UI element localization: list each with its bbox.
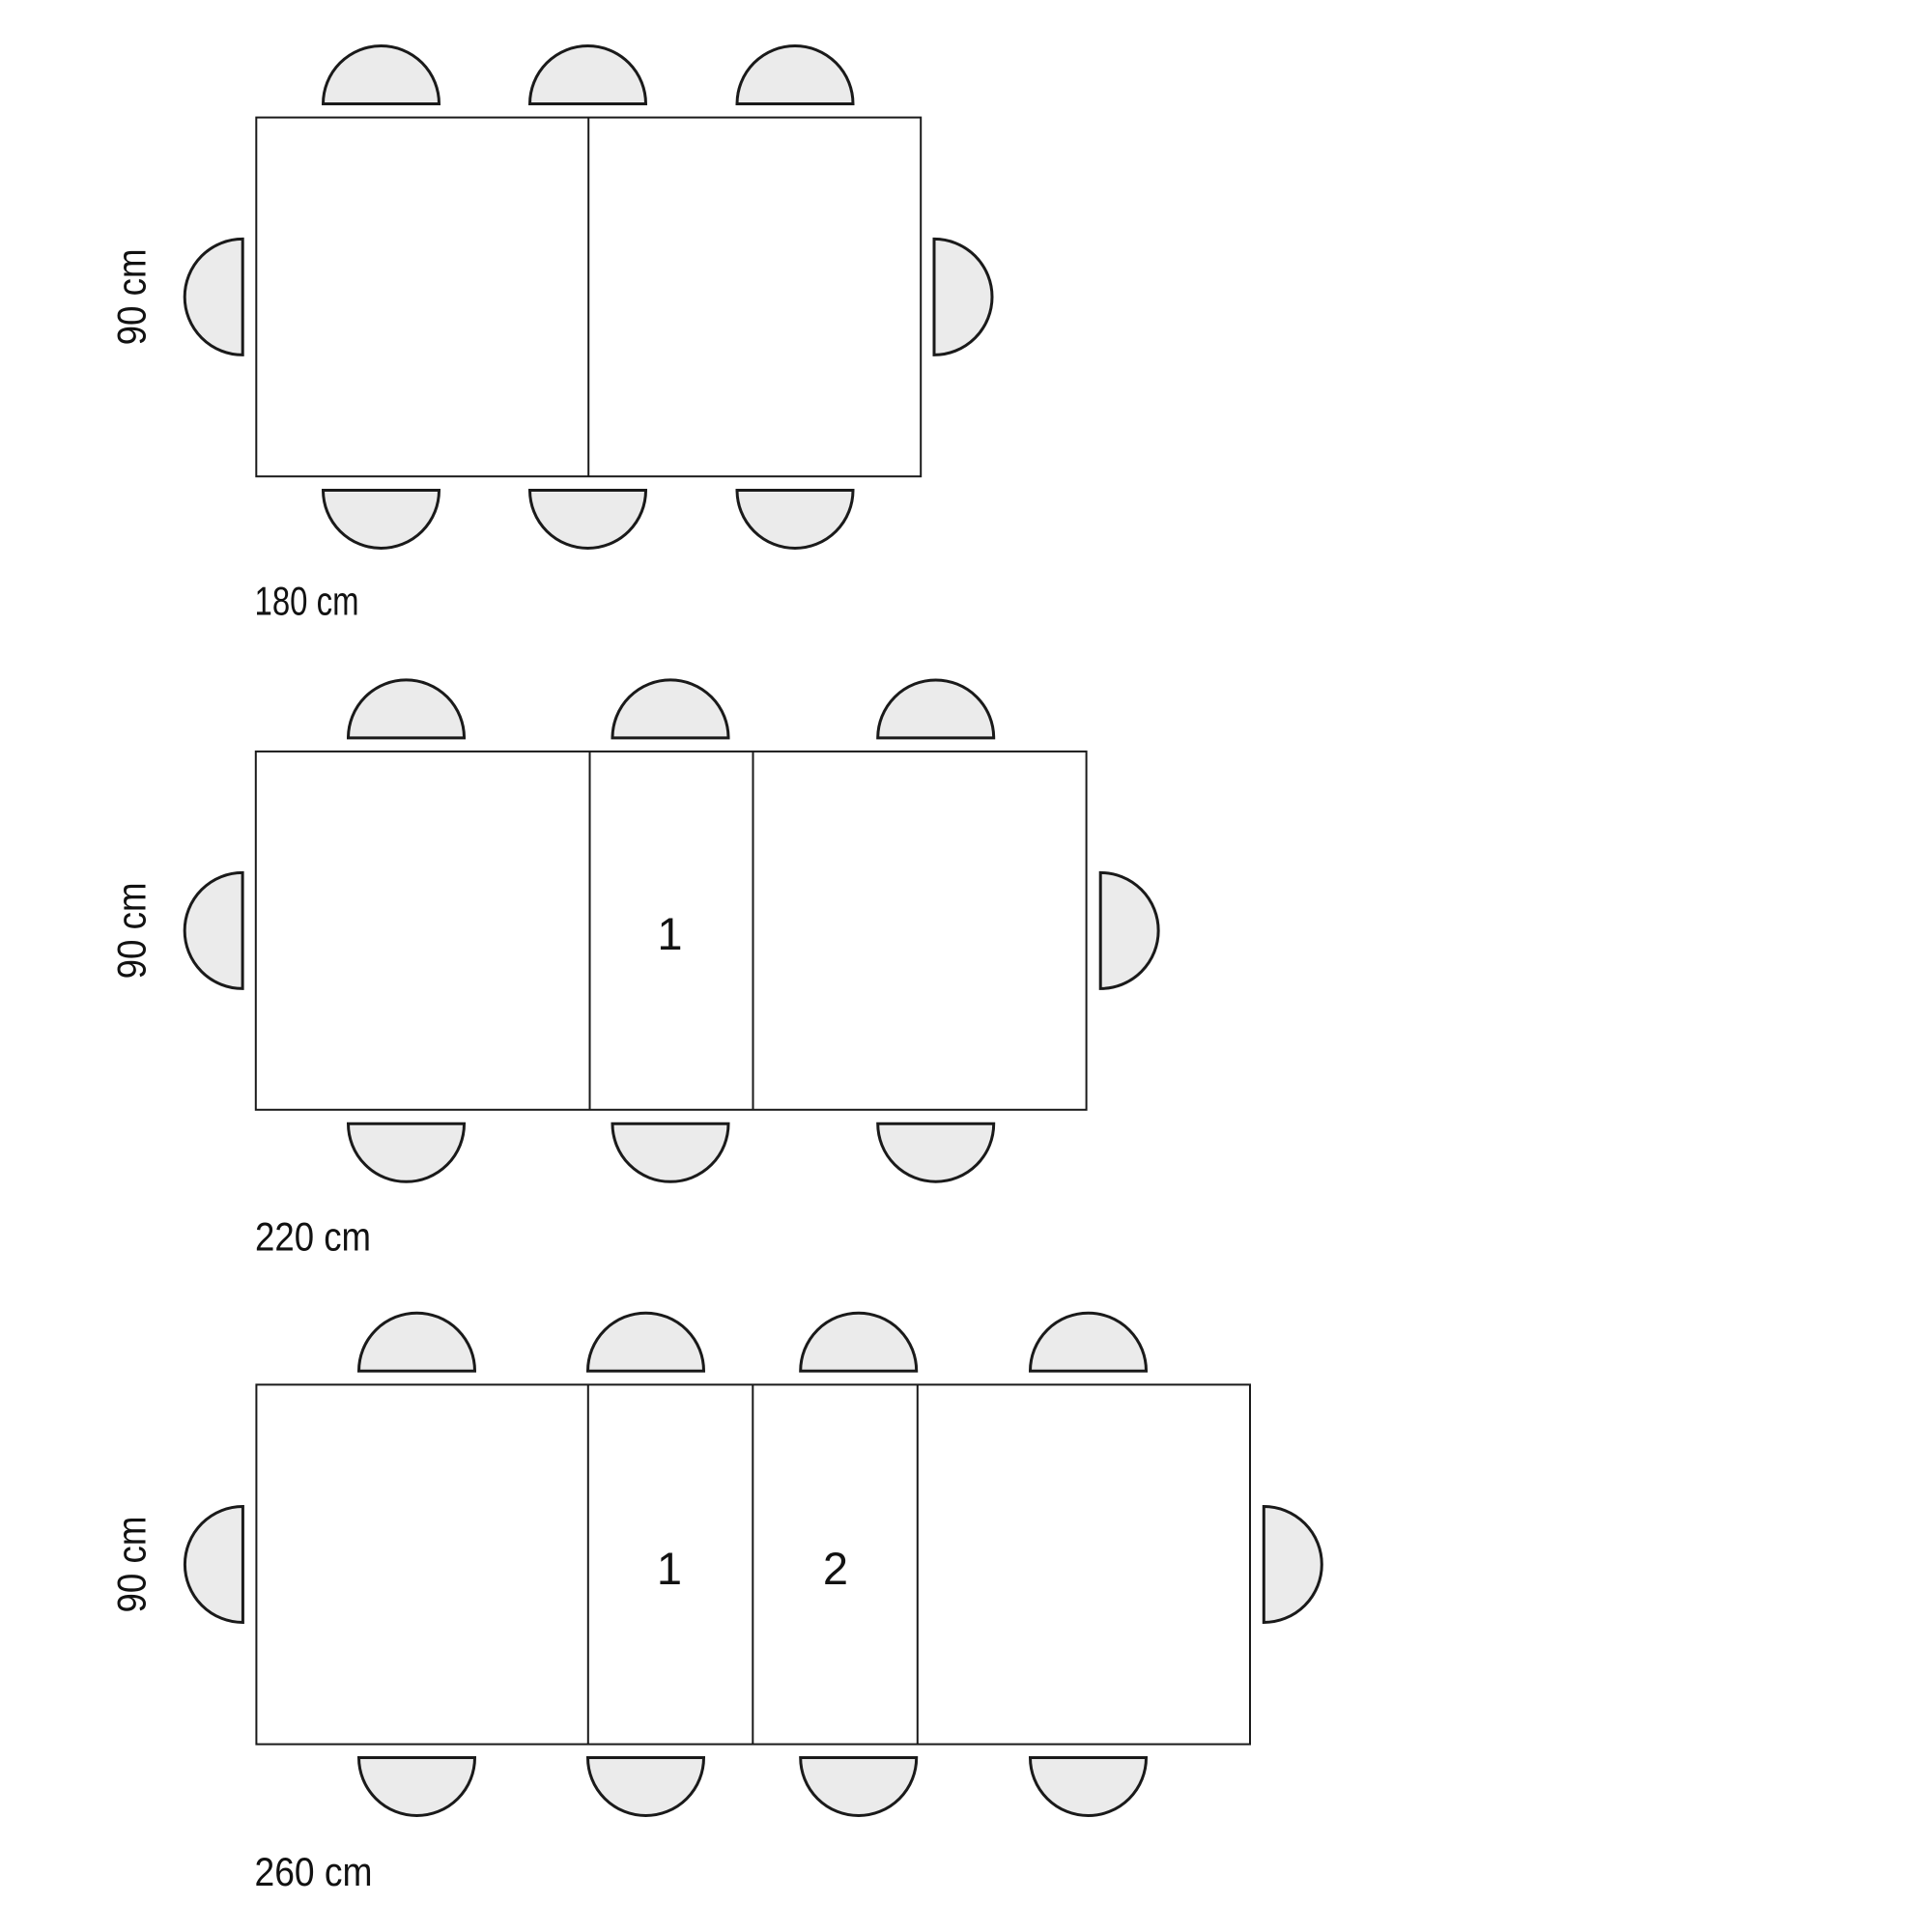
- svg-text:180 cm: 180 cm: [255, 579, 359, 624]
- svg-text:90 cm: 90 cm: [109, 882, 155, 979]
- svg-text:1: 1: [657, 908, 682, 959]
- svg-text:220 cm: 220 cm: [255, 1214, 371, 1260]
- svg-text:260 cm: 260 cm: [255, 1849, 373, 1894]
- svg-text:90 cm: 90 cm: [109, 1517, 155, 1613]
- svg-text:90 cm: 90 cm: [109, 248, 155, 345]
- svg-text:1: 1: [657, 1543, 682, 1594]
- svg-text:2: 2: [823, 1543, 848, 1594]
